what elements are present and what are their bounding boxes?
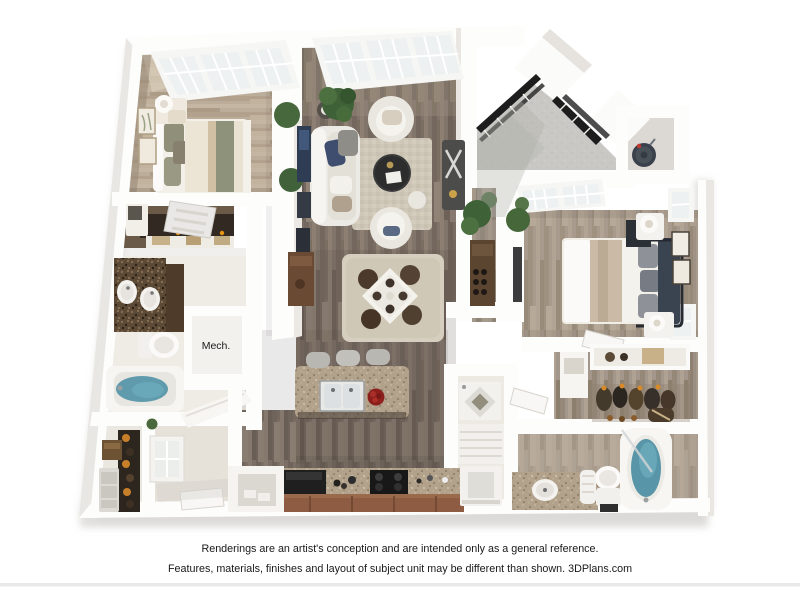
svg-text:Renderings are an artist's con: Renderings are an artist's conception an… [201,543,598,555]
svg-text:Mech.: Mech. [202,340,231,352]
svg-text:Features, materials, finishes: Features, materials, finishes and layout… [168,563,632,575]
